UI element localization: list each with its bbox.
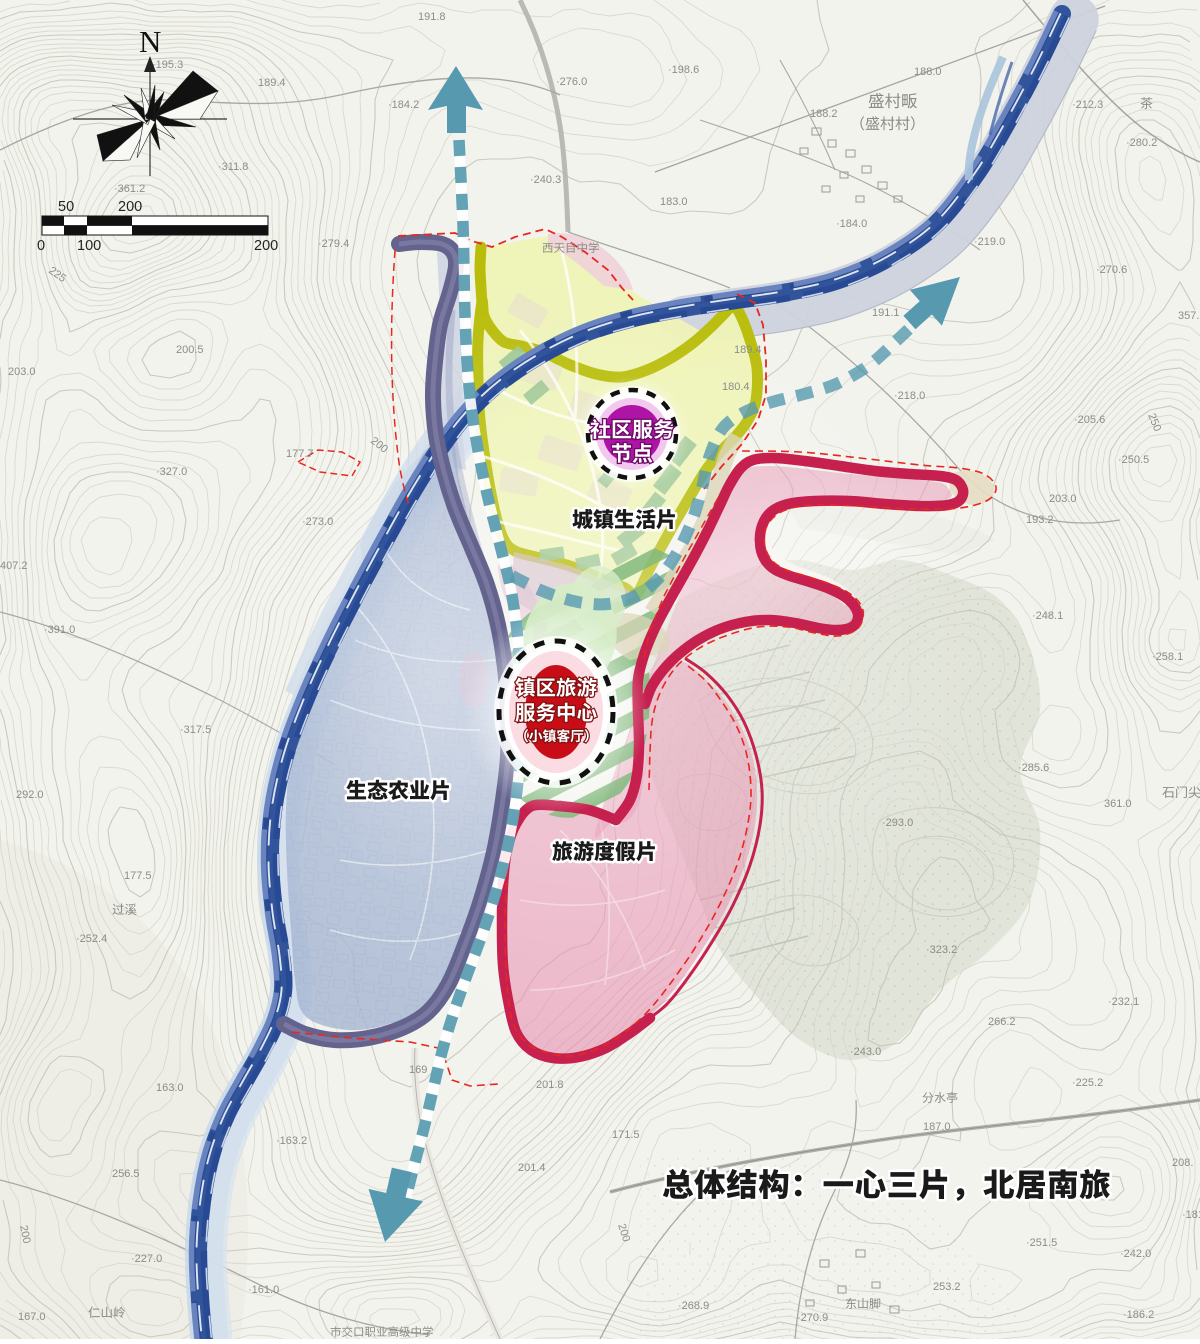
svg-text:·251.5: ·251.5 <box>1026 1237 1057 1249</box>
svg-text:100: 100 <box>77 238 101 254</box>
svg-text:177.5: 177.5 <box>124 870 152 882</box>
svg-text:191.1: 191.1 <box>872 307 900 319</box>
svg-text:188.0: 188.0 <box>914 66 942 78</box>
svg-text:188.2: 188.2 <box>810 108 838 120</box>
svg-text:·225.2: ·225.2 <box>1072 1077 1103 1089</box>
svg-text:167.0: 167.0 <box>18 1311 46 1323</box>
svg-text:·252.4: ·252.4 <box>76 933 107 945</box>
svg-text:·285.6: ·285.6 <box>1018 762 1049 774</box>
svg-text:·212.3: ·212.3 <box>1072 99 1103 111</box>
svg-text:·205.6: ·205.6 <box>1074 414 1105 426</box>
svg-text:0: 0 <box>37 238 45 254</box>
svg-text:·163.2: ·163.2 <box>276 1135 307 1147</box>
svg-text:·227.0: ·227.0 <box>131 1253 162 1265</box>
svg-text:361.0: 361.0 <box>1104 798 1132 810</box>
svg-text:·327.0: ·327.0 <box>156 466 187 478</box>
svg-text:·250.5: ·250.5 <box>1118 454 1149 466</box>
svg-text:·311.8: ·311.8 <box>218 161 248 173</box>
svg-text:·317.5: ·317.5 <box>180 724 211 736</box>
svg-text:·361.2: ·361.2 <box>114 183 145 195</box>
svg-text:·391.0: ·391.0 <box>44 624 75 636</box>
svg-text:407.2: 407.2 <box>0 560 28 572</box>
svg-text:50: 50 <box>58 199 74 215</box>
svg-text:·186.2: ·186.2 <box>1123 1309 1154 1321</box>
svg-text:200.5: 200.5 <box>176 344 204 356</box>
svg-text:193.2: 193.2 <box>1026 514 1054 526</box>
svg-text:189.4: 189.4 <box>258 77 286 89</box>
svg-text:208.: 208. <box>1172 1157 1193 1169</box>
svg-text:187.0: 187.0 <box>923 1121 951 1133</box>
svg-text:180.4: 180.4 <box>722 381 750 393</box>
svg-text:·195.3: ·195.3 <box>152 59 183 71</box>
svg-text:203.0: 203.0 <box>8 366 36 378</box>
svg-text:·276.0: ·276.0 <box>556 76 587 88</box>
svg-text:·243.0: ·243.0 <box>850 1046 881 1058</box>
svg-text:·242.0: ·242.0 <box>1120 1248 1151 1260</box>
svg-text:·218.0: ·218.0 <box>894 390 925 402</box>
svg-text:357.: 357. <box>1178 310 1199 322</box>
svg-text:·198.6: ·198.6 <box>668 64 699 76</box>
svg-text:·240.3: ·240.3 <box>530 174 561 186</box>
svg-text:·270.6: ·270.6 <box>1096 264 1127 276</box>
svg-text:201.8: 201.8 <box>536 1079 564 1091</box>
svg-text:163.0: 163.0 <box>156 1082 184 1094</box>
svg-text:177.7: 177.7 <box>286 448 314 460</box>
svg-text:·258.1: ·258.1 <box>1152 651 1183 663</box>
svg-text:183.0: 183.0 <box>660 196 688 208</box>
svg-text:·232.1: ·232.1 <box>1108 996 1139 1008</box>
svg-text:·161.0: ·161.0 <box>248 1284 279 1296</box>
svg-text:N: N <box>139 24 161 59</box>
svg-text:191.8: 191.8 <box>418 11 446 23</box>
svg-text:266.2: 266.2 <box>988 1016 1016 1028</box>
svg-text:·273.0: ·273.0 <box>302 516 333 528</box>
svg-text:171.5: 171.5 <box>612 1129 640 1141</box>
svg-text:200: 200 <box>254 238 278 254</box>
svg-text:·248.1: ·248.1 <box>1032 610 1063 622</box>
svg-text:·270.9: ·270.9 <box>797 1312 828 1324</box>
svg-text:292.0: 292.0 <box>16 789 44 801</box>
svg-text:·323.2: ·323.2 <box>926 944 957 956</box>
svg-text:189.4: 189.4 <box>734 344 762 356</box>
svg-text:·219.0: ·219.0 <box>974 236 1005 248</box>
svg-text:·293.0: ·293.0 <box>882 817 913 829</box>
svg-text:169: 169 <box>409 1064 427 1076</box>
svg-text:·184.0: ·184.0 <box>836 218 867 230</box>
svg-text:·181: ·181 <box>1182 1209 1200 1221</box>
svg-text:256.5: 256.5 <box>112 1168 140 1180</box>
svg-text:200: 200 <box>118 199 142 215</box>
svg-text:253.2: 253.2 <box>933 1281 961 1293</box>
svg-text:·268.9: ·268.9 <box>678 1300 709 1312</box>
svg-text:·184.2: ·184.2 <box>388 99 419 111</box>
svg-text:201.4: 201.4 <box>518 1162 546 1174</box>
svg-text:·280.2: ·280.2 <box>1126 137 1157 149</box>
svg-text:203.0: 203.0 <box>1049 493 1077 505</box>
svg-text:·279.4: ·279.4 <box>318 238 349 250</box>
